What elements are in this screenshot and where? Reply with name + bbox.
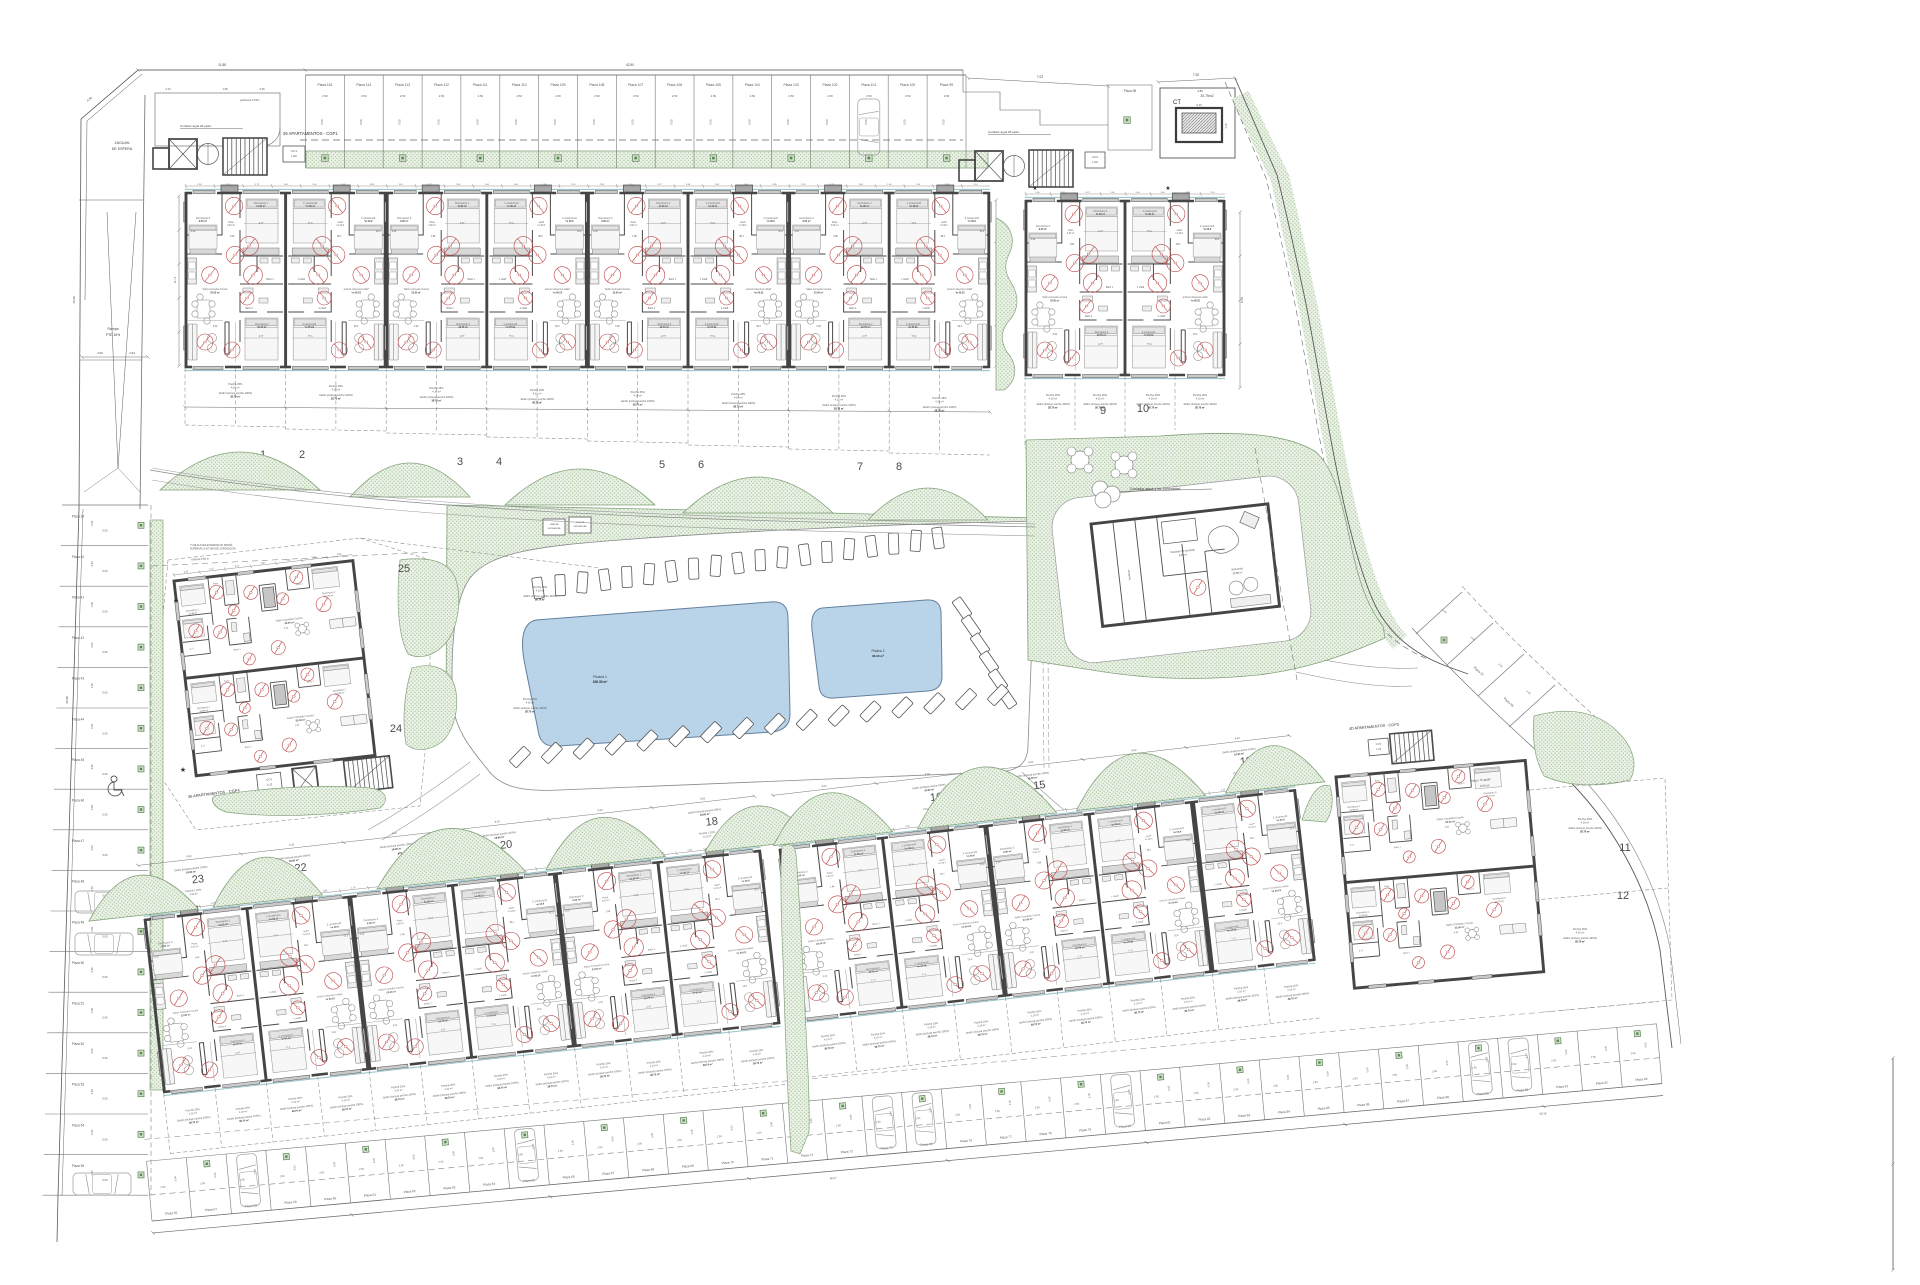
svg-text:5.00: 5.00 bbox=[174, 1176, 177, 1182]
svg-text:2.50: 2.50 bbox=[400, 94, 406, 98]
svg-text:2.50: 2.50 bbox=[1353, 1077, 1359, 1080]
svg-text:5.00: 5.00 bbox=[373, 1157, 376, 1163]
svg-text:2.50: 2.50 bbox=[399, 1164, 405, 1167]
svg-text:38.70 m²: 38.70 m² bbox=[331, 396, 341, 400]
svg-text:5.00: 5.00 bbox=[102, 1097, 108, 1101]
svg-text:2.50: 2.50 bbox=[90, 520, 94, 526]
svg-text:2.50: 2.50 bbox=[90, 601, 94, 607]
svg-text:Porche 25%: Porche 25% bbox=[228, 382, 243, 386]
svg-text:2.50: 2.50 bbox=[518, 1153, 524, 1156]
svg-text:5.00: 5.00 bbox=[611, 1136, 614, 1142]
svg-text:38.70 m²: 38.70 m² bbox=[431, 398, 441, 402]
svg-text:38.70 m²: 38.70 m² bbox=[532, 400, 542, 404]
svg-text:Piscina 2: Piscina 2 bbox=[872, 649, 885, 653]
svg-text:4.10 m²: 4.10 m² bbox=[734, 396, 743, 399]
svg-text:2.50: 2.50 bbox=[1313, 1081, 1319, 1084]
svg-text:4.10 m²: 4.10 m² bbox=[536, 589, 545, 592]
svg-text:18: 18 bbox=[705, 815, 719, 828]
svg-text:4.10 m²: 4.10 m² bbox=[1576, 931, 1585, 934]
svg-text:2.64: 2.64 bbox=[129, 351, 135, 355]
svg-text:DEPURADORA: DEPURADORA bbox=[574, 525, 587, 528]
svg-text:Plaza 49: Plaza 49 bbox=[72, 920, 85, 924]
svg-text:Porche 25%: Porche 25% bbox=[1573, 927, 1588, 931]
svg-text:5.00: 5.00 bbox=[102, 650, 108, 654]
svg-text:Jardín (incluye porche 100%): Jardín (incluye porche 100%) bbox=[1568, 826, 1602, 830]
svg-text:2.50: 2.50 bbox=[439, 94, 445, 98]
svg-text:LUZ: LUZ bbox=[267, 782, 273, 787]
svg-text:5.00: 5.00 bbox=[436, 119, 440, 125]
svg-text:38.70 m²: 38.70 m² bbox=[535, 597, 545, 601]
svg-text:2.50: 2.50 bbox=[756, 1131, 762, 1134]
svg-text:5.00: 5.00 bbox=[864, 119, 868, 125]
svg-text:5.00: 5.00 bbox=[1445, 1060, 1448, 1066]
svg-text:Porche 25%: Porche 25% bbox=[329, 384, 344, 388]
svg-text:Jardín (incluye porche 100%): Jardín (incluye porche 100%) bbox=[218, 391, 252, 395]
svg-text:2.50: 2.50 bbox=[1511, 1063, 1517, 1066]
svg-text:★: ★ bbox=[173, 597, 179, 605]
svg-text:Jardín (incluye porche 100%): Jardín (incluye porche 100%) bbox=[721, 401, 755, 405]
svg-text:Porche 25%: Porche 25% bbox=[523, 697, 538, 701]
svg-text:4.10 m²: 4.10 m² bbox=[1096, 397, 1105, 400]
svg-text:2.50: 2.50 bbox=[711, 94, 717, 98]
svg-text:2.50: 2.50 bbox=[90, 926, 94, 932]
svg-text:2.50: 2.50 bbox=[633, 94, 639, 98]
svg-text:2.50: 2.50 bbox=[319, 1171, 325, 1174]
svg-text:5.00: 5.00 bbox=[1366, 1067, 1369, 1073]
svg-text:Plaza 107: Plaza 107 bbox=[628, 83, 643, 87]
svg-text:Plaza 44: Plaza 44 bbox=[72, 717, 85, 721]
svg-text:Porche 25%: Porche 25% bbox=[832, 394, 847, 398]
svg-text:Plaza 110: Plaza 110 bbox=[512, 83, 527, 87]
svg-text:Plaza 105: Plaza 105 bbox=[706, 83, 721, 87]
svg-text:2.50: 2.50 bbox=[558, 1149, 564, 1152]
svg-text:1.98: 1.98 bbox=[222, 87, 228, 91]
svg-text:DEPURADORA: DEPURADORA bbox=[548, 527, 561, 530]
svg-text:2.50: 2.50 bbox=[240, 1178, 246, 1181]
svg-text:Porche 25%: Porche 25% bbox=[1046, 393, 1061, 397]
svg-text:25: 25 bbox=[398, 563, 410, 575]
svg-text:5.00: 5.00 bbox=[553, 119, 557, 125]
svg-text:2.50: 2.50 bbox=[90, 967, 94, 973]
svg-text:5.00: 5.00 bbox=[214, 1172, 217, 1178]
svg-text:3.00 m²: 3.00 m² bbox=[1480, 783, 1490, 788]
svg-text:11: 11 bbox=[1619, 842, 1630, 854]
svg-text:2.50: 2.50 bbox=[1432, 1070, 1438, 1073]
svg-text:7.02: 7.02 bbox=[1037, 75, 1043, 79]
svg-text:LUZ: LUZ bbox=[1092, 160, 1098, 164]
svg-text:5.00: 5.00 bbox=[571, 1139, 574, 1145]
svg-text:7.30: 7.30 bbox=[1193, 73, 1199, 77]
svg-text:4.00: 4.00 bbox=[97, 351, 103, 355]
svg-text:Jardín (incluye porche 100%): Jardín (incluye porche 100%) bbox=[319, 393, 353, 397]
svg-text:Plaza 52: Plaza 52 bbox=[72, 1042, 85, 1046]
svg-text:5.00: 5.00 bbox=[102, 1016, 108, 1020]
svg-text:Porche 25%: Porche 25% bbox=[533, 585, 548, 589]
svg-text:4.10 m²: 4.10 m² bbox=[1196, 397, 1205, 400]
svg-text:38.70 m²: 38.70 m² bbox=[1580, 829, 1590, 833]
svg-text:4: 4 bbox=[496, 456, 502, 468]
svg-text:4.10 m²: 4.10 m² bbox=[633, 394, 642, 397]
svg-text:4.10 m²: 4.10 m² bbox=[332, 388, 341, 391]
svg-text:26 APARTAMENTOS - CGP1: 26 APARTAMENTOS - CGP1 bbox=[283, 131, 338, 136]
svg-text:5.00: 5.00 bbox=[903, 119, 907, 125]
svg-text:Plaza 51: Plaza 51 bbox=[72, 1002, 85, 1006]
svg-text:23: 23 bbox=[191, 873, 205, 886]
svg-text:2.50: 2.50 bbox=[1392, 1074, 1398, 1077]
svg-text:LUZ: LUZ bbox=[291, 154, 297, 158]
svg-text:2.50: 2.50 bbox=[944, 94, 950, 98]
svg-text:Jardín (incluye porche 100%): Jardín (incluye porche 100%) bbox=[513, 706, 547, 710]
svg-text:2.50: 2.50 bbox=[90, 845, 94, 851]
svg-text:PTE 16%: PTE 16% bbox=[106, 333, 120, 337]
svg-text:5.00: 5.00 bbox=[730, 1125, 733, 1131]
svg-text:4.10 m²: 4.10 m² bbox=[1149, 397, 1158, 400]
svg-text:2.50: 2.50 bbox=[1193, 1092, 1199, 1095]
svg-text:Jardín (incluye porche 100%): Jardín (incluye porche 100%) bbox=[923, 405, 957, 409]
svg-text:LUZ: LUZ bbox=[1376, 747, 1382, 751]
svg-text:8: 8 bbox=[896, 461, 902, 473]
svg-text:5.00: 5.00 bbox=[942, 119, 946, 125]
svg-text:4.10 m²: 4.10 m² bbox=[935, 400, 944, 403]
svg-text:2.50: 2.50 bbox=[160, 1186, 166, 1189]
svg-text:2.50: 2.50 bbox=[90, 642, 94, 648]
svg-text:Jardín (incluye porche 100%): Jardín (incluye porche 100%) bbox=[520, 397, 554, 401]
svg-text:2.50: 2.50 bbox=[1114, 1099, 1120, 1102]
svg-text:2.50: 2.50 bbox=[361, 94, 367, 98]
svg-text:5.00: 5.00 bbox=[102, 813, 108, 817]
svg-text:5: 5 bbox=[659, 459, 665, 471]
svg-text:15.52: 15.52 bbox=[1240, 296, 1244, 303]
svg-text:Plaza 113: Plaza 113 bbox=[395, 83, 410, 87]
svg-text:Plaza 39: Plaza 39 bbox=[72, 514, 85, 518]
svg-text:★: ★ bbox=[180, 766, 186, 774]
svg-text:Porche 25%: Porche 25% bbox=[1146, 393, 1161, 397]
svg-text:4.10 m²: 4.10 m² bbox=[231, 386, 240, 389]
svg-text:4.10 m²: 4.10 m² bbox=[835, 398, 844, 401]
svg-text:Porche 25%: Porche 25% bbox=[932, 396, 947, 400]
svg-text:CASETA: CASETA bbox=[550, 523, 559, 526]
svg-text:★: ★ bbox=[1165, 185, 1170, 192]
svg-text:5.00: 5.00 bbox=[786, 119, 790, 125]
svg-text:5.00: 5.00 bbox=[412, 1154, 415, 1160]
svg-text:2.50: 2.50 bbox=[866, 94, 872, 98]
svg-text:Plaza 98: Plaza 98 bbox=[1124, 89, 1137, 93]
svg-text:Porche 25%: Porche 25% bbox=[530, 388, 545, 392]
svg-text:Plaza 55: Plaza 55 bbox=[72, 1164, 85, 1168]
svg-text:Plaza 108: Plaza 108 bbox=[589, 83, 604, 87]
svg-text:38.70 m²: 38.70 m² bbox=[834, 406, 844, 410]
svg-text:2.50: 2.50 bbox=[478, 1157, 484, 1160]
svg-text:2.50: 2.50 bbox=[1035, 1106, 1041, 1109]
svg-text:2.50: 2.50 bbox=[750, 94, 756, 98]
svg-text:11.74: 11.74 bbox=[173, 276, 177, 283]
svg-text:Plaza 47: Plaza 47 bbox=[72, 839, 85, 843]
svg-text:5.00: 5.00 bbox=[1008, 1100, 1011, 1106]
svg-text:38.70 m²: 38.70 m² bbox=[1195, 405, 1205, 409]
svg-text:2.50: 2.50 bbox=[90, 1048, 94, 1054]
svg-text:5.00: 5.00 bbox=[969, 1103, 972, 1109]
svg-text:Plaza 41: Plaza 41 bbox=[72, 596, 85, 600]
svg-text:Porche 25%: Porche 25% bbox=[1578, 817, 1593, 821]
svg-text:Plaza 54: Plaza 54 bbox=[72, 1123, 85, 1127]
svg-text:5.00: 5.00 bbox=[475, 119, 479, 125]
svg-text:5.00: 5.00 bbox=[102, 691, 108, 695]
svg-text:46.57: 46.57 bbox=[830, 1176, 838, 1181]
svg-text:Jardín (incluye porche 100%): Jardín (incluye porche 100%) bbox=[1563, 936, 1597, 940]
svg-text:38.70 m²: 38.70 m² bbox=[230, 394, 240, 398]
svg-text:Porche 25%: Porche 25% bbox=[1193, 393, 1208, 397]
svg-text:CC4: CC4 bbox=[266, 777, 272, 782]
svg-text:5.00: 5.00 bbox=[102, 934, 108, 938]
svg-text:Plaza 101: Plaza 101 bbox=[861, 83, 876, 87]
svg-text:2.50: 2.50 bbox=[1074, 1102, 1080, 1105]
svg-text:2.50: 2.50 bbox=[280, 1175, 286, 1178]
svg-text:2.50: 2.50 bbox=[359, 1168, 365, 1171]
svg-text:6: 6 bbox=[698, 459, 704, 471]
svg-text:24: 24 bbox=[390, 723, 402, 735]
svg-text:5.00: 5.00 bbox=[333, 1161, 336, 1167]
svg-text:Cortador agua 26 apart.: Cortador agua 26 apart. bbox=[180, 124, 212, 128]
svg-text:2.50: 2.50 bbox=[90, 683, 94, 689]
svg-text:5.00: 5.00 bbox=[691, 1129, 694, 1135]
svg-text:2.50: 2.50 bbox=[90, 764, 94, 770]
svg-text:5.00: 5.00 bbox=[102, 1178, 108, 1182]
svg-text:Plaza 99: Plaza 99 bbox=[940, 83, 953, 87]
svg-text:5.00: 5.00 bbox=[747, 119, 751, 125]
svg-text:ZAGUAN: ZAGUAN bbox=[115, 141, 130, 145]
svg-text:5.00: 5.00 bbox=[492, 1147, 495, 1153]
svg-text:5.00: 5.00 bbox=[1604, 1045, 1607, 1051]
svg-text:2.50: 2.50 bbox=[905, 94, 911, 98]
svg-text:Cortador agua 25 apart.: Cortador agua 25 apart. bbox=[988, 130, 1020, 134]
svg-text:5.00: 5.00 bbox=[1287, 1074, 1290, 1080]
svg-text:2.50: 2.50 bbox=[90, 804, 94, 810]
svg-text:4.10 m²: 4.10 m² bbox=[533, 392, 542, 395]
svg-text:2.50: 2.50 bbox=[717, 1135, 723, 1138]
svg-text:Plaza 109: Plaza 109 bbox=[550, 83, 565, 87]
svg-text:2.50: 2.50 bbox=[90, 723, 94, 729]
svg-text:CC2: CC2 bbox=[1092, 155, 1098, 159]
svg-text:38.70 m²: 38.70 m² bbox=[525, 709, 535, 713]
svg-text:Piscina 1: Piscina 1 bbox=[593, 675, 607, 679]
svg-text:5.00: 5.00 bbox=[514, 119, 518, 125]
svg-text:2.50: 2.50 bbox=[594, 94, 600, 98]
svg-text:7: 7 bbox=[857, 461, 863, 473]
svg-text:2.50: 2.50 bbox=[90, 886, 94, 892]
svg-text:5.00: 5.00 bbox=[102, 975, 108, 979]
svg-text:2.50: 2.50 bbox=[90, 561, 94, 567]
svg-text:36.90 m²: 36.90 m² bbox=[872, 654, 884, 658]
svg-text:Plaza 40: Plaza 40 bbox=[72, 555, 85, 559]
svg-text:SUPERAR LA ALTURA DE CORONACIÓ: SUPERAR LA ALTURA DE CORONACIÓN bbox=[190, 547, 236, 550]
svg-text:2.50: 2.50 bbox=[322, 94, 328, 98]
svg-text:Plaza 53: Plaza 53 bbox=[72, 1083, 85, 1087]
svg-text:2.50: 2.50 bbox=[876, 1121, 882, 1124]
svg-text:38.70 m²: 38.70 m² bbox=[1575, 939, 1585, 943]
svg-text:5.00: 5.00 bbox=[102, 569, 108, 573]
svg-text:Plaza 111: Plaza 111 bbox=[473, 83, 488, 87]
svg-text:2.50: 2.50 bbox=[827, 94, 833, 98]
svg-text:4.10 m²: 4.10 m² bbox=[1581, 821, 1590, 824]
svg-text:5.00: 5.00 bbox=[102, 772, 108, 776]
svg-text:5.00: 5.00 bbox=[1326, 1071, 1329, 1077]
svg-text:Plaza 112: Plaza 112 bbox=[434, 83, 449, 87]
svg-text:2.50: 2.50 bbox=[955, 1113, 961, 1116]
svg-text:Porche 25%: Porche 25% bbox=[731, 392, 746, 396]
svg-text:Jardín (incluye porche 100%): Jardín (incluye porche 100%) bbox=[1183, 402, 1217, 406]
svg-text:6.50: 6.50 bbox=[597, 809, 603, 813]
svg-text:Porche 25%: Porche 25% bbox=[1093, 393, 1108, 397]
svg-text:Plaza 106: Plaza 106 bbox=[667, 83, 682, 87]
svg-text:Plaza 102: Plaza 102 bbox=[822, 83, 837, 87]
svg-text:Porche 25%: Porche 25% bbox=[429, 386, 444, 390]
svg-text:5.00: 5.00 bbox=[102, 853, 108, 857]
svg-text:4.10 m²: 4.10 m² bbox=[1049, 397, 1058, 400]
svg-text:CT: CT bbox=[1173, 100, 1181, 106]
svg-text:2.50: 2.50 bbox=[672, 94, 678, 98]
svg-text:2.50: 2.50 bbox=[438, 1160, 444, 1163]
svg-text:Jardín (incluye porche 100%): Jardín (incluye porche 100%) bbox=[420, 395, 454, 399]
svg-text:Jardín (incluye porche 100%): Jardín (incluye porche 100%) bbox=[1036, 402, 1070, 406]
svg-text:Jardín (incluye porche 100%): Jardín (incluye porche 100%) bbox=[621, 399, 655, 403]
svg-text:5.00: 5.00 bbox=[102, 1137, 108, 1141]
svg-text:5.00: 5.00 bbox=[670, 119, 674, 125]
svg-text:2.50: 2.50 bbox=[516, 94, 522, 98]
svg-text:Plaza 103: Plaza 103 bbox=[784, 83, 799, 87]
svg-text:2.50: 2.50 bbox=[200, 1182, 206, 1185]
svg-text:Plaza 115: Plaza 115 bbox=[317, 83, 332, 87]
svg-text:2.50: 2.50 bbox=[90, 1129, 94, 1135]
svg-text:5.00: 5.00 bbox=[1167, 1085, 1170, 1091]
svg-text:Plaza 46: Plaza 46 bbox=[72, 799, 85, 803]
svg-text:Plaza 114: Plaza 114 bbox=[356, 83, 371, 87]
svg-text:5.00: 5.00 bbox=[1644, 1042, 1647, 1048]
svg-text:2: 2 bbox=[299, 449, 305, 461]
svg-text:4.10 m²: 4.10 m² bbox=[432, 390, 441, 393]
svg-text:38.70 m²: 38.70 m² bbox=[733, 404, 743, 408]
svg-text:38.70 m²: 38.70 m² bbox=[1048, 405, 1058, 409]
svg-text:Plaza 43: Plaza 43 bbox=[72, 677, 85, 681]
svg-text:2.50: 2.50 bbox=[478, 94, 484, 98]
svg-text:5.00: 5.00 bbox=[651, 1132, 654, 1138]
svg-text:2.50: 2.50 bbox=[90, 1007, 94, 1013]
svg-text:2.50: 2.50 bbox=[637, 1142, 643, 1145]
svg-text:106.30 m²: 106.30 m² bbox=[593, 680, 608, 684]
svg-text:Plaza 45: Plaza 45 bbox=[72, 758, 85, 762]
svg-text:Plaza 42: Plaza 42 bbox=[72, 636, 85, 640]
svg-text:5.00: 5.00 bbox=[293, 1165, 296, 1171]
svg-text:2.50: 2.50 bbox=[555, 94, 561, 98]
svg-text:2.50: 2.50 bbox=[1154, 1095, 1160, 1098]
svg-text:4.25: 4.25 bbox=[259, 87, 265, 91]
svg-text:2.50: 2.50 bbox=[597, 1146, 603, 1149]
svg-text:2.43: 2.43 bbox=[165, 87, 171, 91]
svg-text:5.00: 5.00 bbox=[849, 1114, 852, 1120]
svg-text:2.50: 2.50 bbox=[1233, 1088, 1239, 1091]
svg-text:3: 3 bbox=[457, 456, 463, 468]
svg-text:5.00: 5.00 bbox=[359, 119, 363, 125]
svg-text:5.00: 5.00 bbox=[1048, 1096, 1051, 1102]
svg-text:Plaza 50: Plaza 50 bbox=[72, 961, 85, 965]
svg-text:3.19: 3.19 bbox=[1224, 123, 1228, 129]
svg-text:5.00: 5.00 bbox=[452, 1150, 455, 1156]
svg-text:5.00: 5.00 bbox=[1207, 1082, 1210, 1088]
svg-text:10: 10 bbox=[1137, 403, 1149, 415]
svg-text:5.00: 5.00 bbox=[398, 119, 402, 125]
svg-text:2.50: 2.50 bbox=[1273, 1084, 1279, 1087]
svg-text:25.98: 25.98 bbox=[65, 696, 69, 704]
svg-text:5.00: 5.00 bbox=[1406, 1063, 1409, 1069]
svg-text:20,75m2: 20,75m2 bbox=[1200, 94, 1213, 98]
svg-text:2.50: 2.50 bbox=[90, 1089, 94, 1095]
svg-text:5.00: 5.00 bbox=[631, 119, 635, 125]
svg-text:2.50: 2.50 bbox=[1591, 1055, 1597, 1058]
svg-text:2.50: 2.50 bbox=[915, 1117, 921, 1120]
svg-text:42.50: 42.50 bbox=[626, 63, 634, 67]
svg-text:Plaza 100: Plaza 100 bbox=[900, 83, 915, 87]
svg-text:2.50: 2.50 bbox=[995, 1110, 1001, 1113]
svg-text:5.00: 5.00 bbox=[708, 119, 712, 125]
svg-text:6.49: 6.49 bbox=[1196, 103, 1202, 107]
svg-text:5.00: 5.00 bbox=[1088, 1092, 1091, 1098]
svg-text:5.00: 5.00 bbox=[102, 731, 108, 735]
svg-text:38.70 m²: 38.70 m² bbox=[633, 402, 643, 406]
svg-text:2.50: 2.50 bbox=[788, 94, 794, 98]
svg-text:9: 9 bbox=[1100, 405, 1106, 417]
svg-text:5.00: 5.00 bbox=[1565, 1049, 1568, 1055]
svg-text:5.00: 5.00 bbox=[592, 119, 596, 125]
svg-text:4.10 m²: 4.10 m² bbox=[526, 701, 535, 704]
svg-text:2.50: 2.50 bbox=[1472, 1066, 1478, 1069]
svg-text:5.00: 5.00 bbox=[1247, 1078, 1250, 1084]
svg-text:5.00: 5.00 bbox=[320, 119, 324, 125]
svg-text:2.50: 2.50 bbox=[1631, 1052, 1637, 1055]
svg-text:4.83: 4.83 bbox=[1197, 89, 1203, 93]
svg-text:DE ESPERA: DE ESPERA bbox=[112, 147, 133, 151]
svg-text:38.70 m²: 38.70 m² bbox=[1148, 405, 1158, 409]
svg-text:5.00: 5.00 bbox=[825, 119, 829, 125]
svg-text:Porche 25%: Porche 25% bbox=[631, 390, 646, 394]
svg-text:11.88: 11.88 bbox=[218, 63, 226, 67]
svg-text:Plaza 104: Plaza 104 bbox=[745, 83, 760, 87]
svg-text:jardinera 0.50m: jardinera 0.50m bbox=[239, 98, 260, 102]
svg-text:2.50: 2.50 bbox=[1551, 1059, 1557, 1062]
svg-text:5.00: 5.00 bbox=[102, 1056, 108, 1060]
svg-text:56.19: 56.19 bbox=[1539, 1111, 1547, 1116]
svg-text:CC3: CC3 bbox=[1375, 742, 1381, 747]
svg-text:CC1: CC1 bbox=[291, 149, 297, 153]
svg-text:5.00: 5.00 bbox=[102, 528, 108, 532]
svg-text:5.00: 5.00 bbox=[770, 1121, 773, 1127]
svg-text:15.98: 15.98 bbox=[72, 296, 76, 304]
svg-text:Jardín (incluye porche 100%): Jardín (incluye porche 100%) bbox=[523, 594, 557, 598]
svg-text:Plaza 48: Plaza 48 bbox=[72, 880, 85, 884]
svg-text:5.00: 5.00 bbox=[810, 1118, 813, 1124]
svg-text:Rampa: Rampa bbox=[108, 327, 119, 331]
svg-text:2.50: 2.50 bbox=[677, 1139, 683, 1142]
svg-text:Jardín (incluye porche 100%): Jardín (incluye porche 100%) bbox=[822, 403, 856, 407]
svg-text:2.50: 2.50 bbox=[836, 1124, 842, 1127]
svg-text:5.00: 5.00 bbox=[102, 610, 108, 614]
